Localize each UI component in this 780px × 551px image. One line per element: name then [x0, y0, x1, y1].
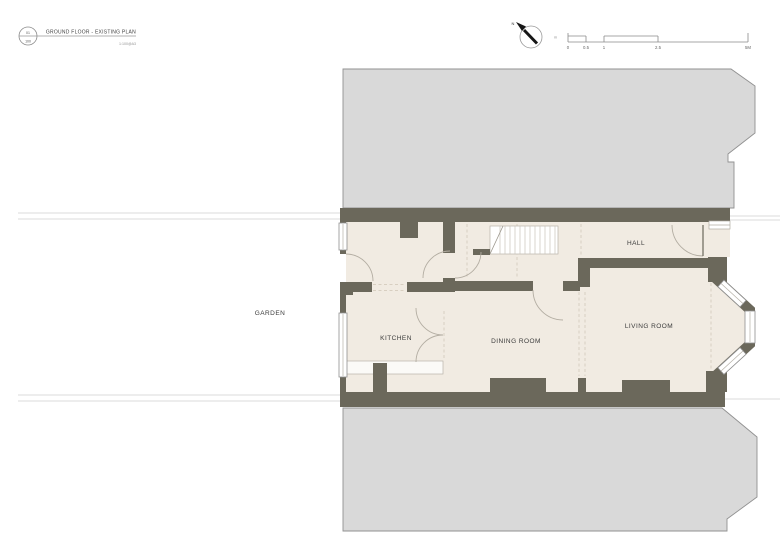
north-letter: N: [512, 21, 515, 26]
room-label-kitchen: KITCHEN: [380, 335, 412, 342]
scale-tick-05: 0.5: [583, 45, 590, 50]
drawing-number: 01: [26, 31, 30, 35]
drawing-title: GROUND FLOOR - EXISTING PLAN: [46, 30, 136, 36]
scale-tick-1: 1: [603, 45, 606, 50]
kitchen-window: [339, 313, 347, 377]
neighbor-building-top: [343, 69, 755, 208]
living-room-wall: [578, 258, 708, 268]
room-label-garden: GARDEN: [255, 310, 286, 317]
dining-chimney: [490, 378, 546, 392]
room-label-living: LIVING ROOM: [625, 323, 673, 330]
drawing-sheet: 01 100 GROUND FLOOR - EXISTING PLAN 1:10…: [0, 0, 780, 551]
scale-unit-label: m: [554, 36, 557, 40]
title-block: 01 100 GROUND FLOOR - EXISTING PLAN 1:10…: [19, 27, 136, 46]
north-arrow-shaft: [524, 30, 537, 44]
drawing-scale-note: 1:100@A3: [119, 42, 136, 46]
party-wall-bottom: [343, 392, 725, 407]
scale-bar-shape: [568, 33, 748, 42]
kitchen-chimney: [373, 363, 387, 392]
scale-tick-5m: 5M: [745, 45, 751, 50]
neighbor-building-bottom: [343, 408, 757, 531]
bay-window-east: [745, 311, 755, 343]
scale-tick-0: 0: [567, 45, 570, 50]
scale-tick-25: 2.5: [655, 45, 662, 50]
living-chimney: [622, 380, 670, 392]
stairs: [490, 226, 558, 254]
stair-stub: [473, 249, 490, 255]
kitchen-counter: [346, 361, 443, 374]
room-label-hall: HALL: [627, 240, 645, 247]
party-wall-top: [343, 208, 730, 222]
lobby-window: [339, 223, 347, 250]
scale-bar: m 0 0.5 1 2.5 5M: [554, 33, 751, 50]
floor-plan-svg: 01 100 GROUND FLOOR - EXISTING PLAN 1:10…: [0, 0, 780, 551]
room-label-dining: DINING ROOM: [491, 338, 541, 345]
sheet-number: 100: [25, 40, 31, 44]
north-arrow: N: [512, 21, 542, 48]
entrance-threshold: [709, 221, 730, 229]
lobby-stub-wall: [400, 222, 418, 238]
